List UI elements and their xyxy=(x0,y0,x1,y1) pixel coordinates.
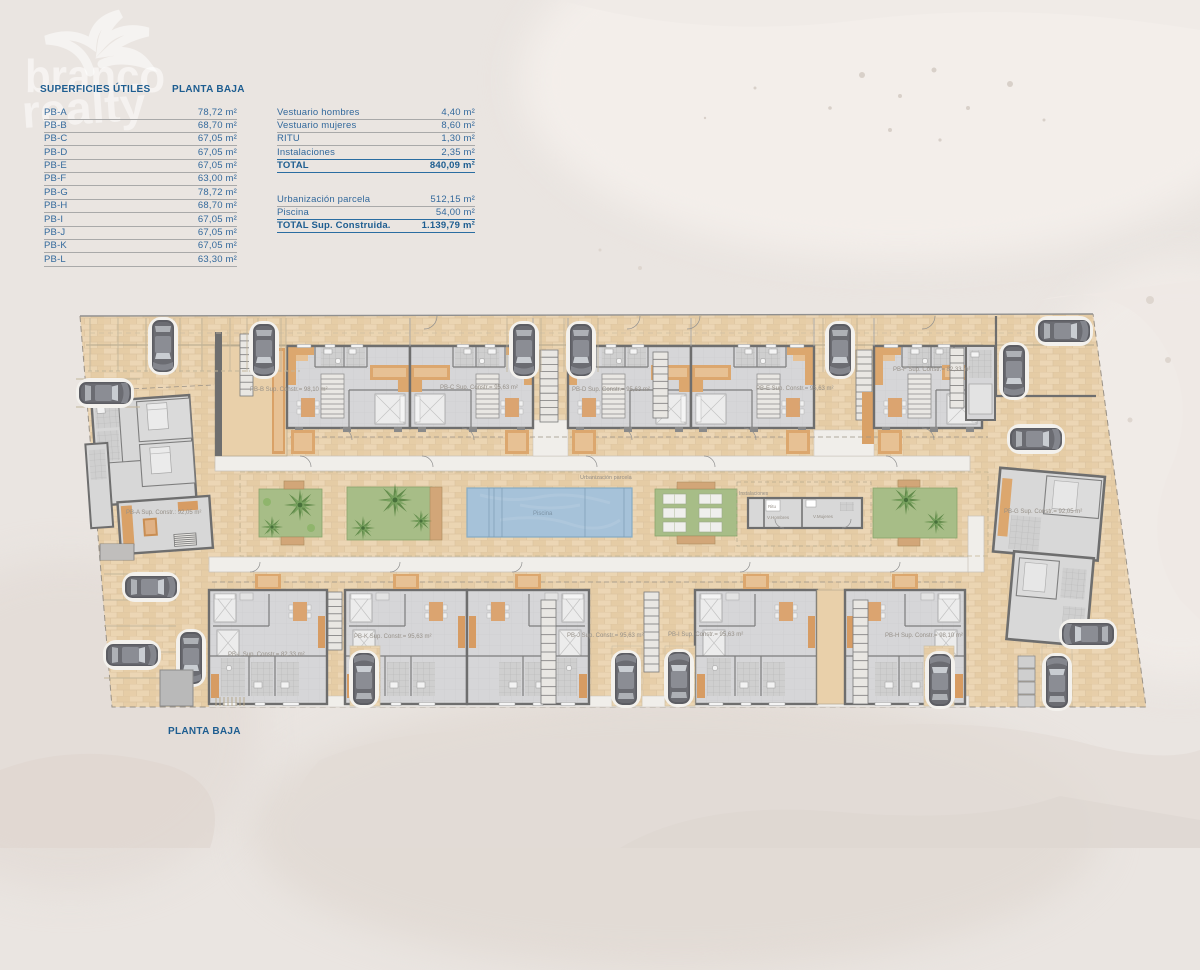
svg-text:PB-H Sup. Constr.= 98,10 m²: PB-H Sup. Constr.= 98,10 m² xyxy=(885,633,963,639)
svg-text:PB-G Sup. Constr.= 92,05 m²: PB-G Sup. Constr.= 92,05 m² xyxy=(1004,509,1082,515)
svg-text:PB-E Sup. Constr.= 95,63 m²: PB-E Sup. Constr.= 95,63 m² xyxy=(756,386,834,392)
svg-text:PB-F Sup. Constr.= 82,33 m²: PB-F Sup. Constr.= 82,33 m² xyxy=(893,367,970,373)
svg-text:PB-L Sup. Constr.= 82,33 m²: PB-L Sup. Constr.= 82,33 m² xyxy=(228,652,305,658)
svg-text:Ritu: Ritu xyxy=(768,504,776,509)
svg-text:V.Hombres: V.Hombres xyxy=(767,515,790,520)
svg-text:PB-A Sup. Constr.: 92,05 m²: PB-A Sup. Constr.: 92,05 m² xyxy=(126,510,201,516)
svg-text:PB-K Sup. Constr.= 95,63 m²: PB-K Sup. Constr.= 95,63 m² xyxy=(354,634,432,640)
svg-text:Piscina: Piscina xyxy=(533,511,553,517)
svg-text:Urbanización parcela: Urbanización parcela xyxy=(580,475,633,481)
svg-text:PB-J Sup. Constr.= 95,63 m²: PB-J Sup. Constr.= 95,63 m² xyxy=(567,633,644,639)
svg-text:PB-D Sup. Constr.= 95,63 m²: PB-D Sup. Constr.= 95,63 m² xyxy=(572,387,650,393)
svg-text:Instalaciones: Instalaciones xyxy=(739,491,769,497)
svg-text:PB-I Sup. Constr.= 95,63 m²: PB-I Sup. Constr.= 95,63 m² xyxy=(668,632,743,638)
svg-text:V.Mujeres: V.Mujeres xyxy=(813,514,834,519)
svg-text:PB-C Sup. Constr.= 95,63 m²: PB-C Sup. Constr.= 95,63 m² xyxy=(440,385,518,391)
svg-text:PB-B Sup. Constr.= 98,10 m²: PB-B Sup. Constr.= 98,10 m² xyxy=(250,387,328,393)
